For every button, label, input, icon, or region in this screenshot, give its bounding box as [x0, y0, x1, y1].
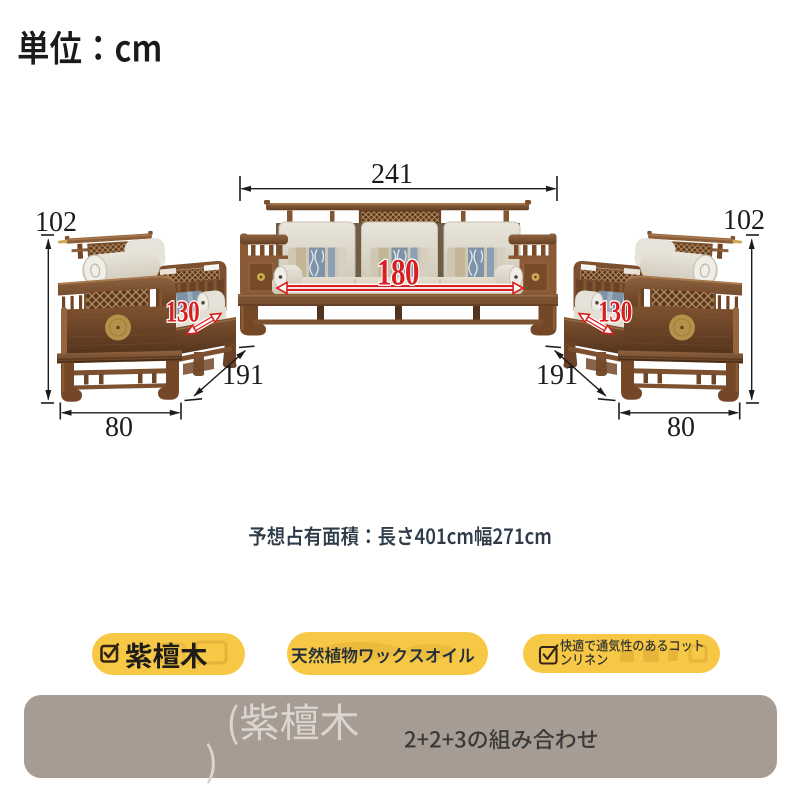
svg-text:80: 80 [105, 412, 133, 443]
svg-text:80: 80 [667, 412, 695, 443]
svg-text:180: 180 [377, 252, 419, 293]
svg-text:191: 191 [536, 360, 578, 391]
svg-text:241: 241 [371, 159, 413, 190]
svg-text:102: 102 [723, 205, 765, 236]
svg-text:130: 130 [598, 294, 632, 328]
svg-text:102: 102 [35, 207, 77, 238]
svg-text:191: 191 [222, 360, 264, 391]
svg-text:130: 130 [166, 294, 200, 328]
